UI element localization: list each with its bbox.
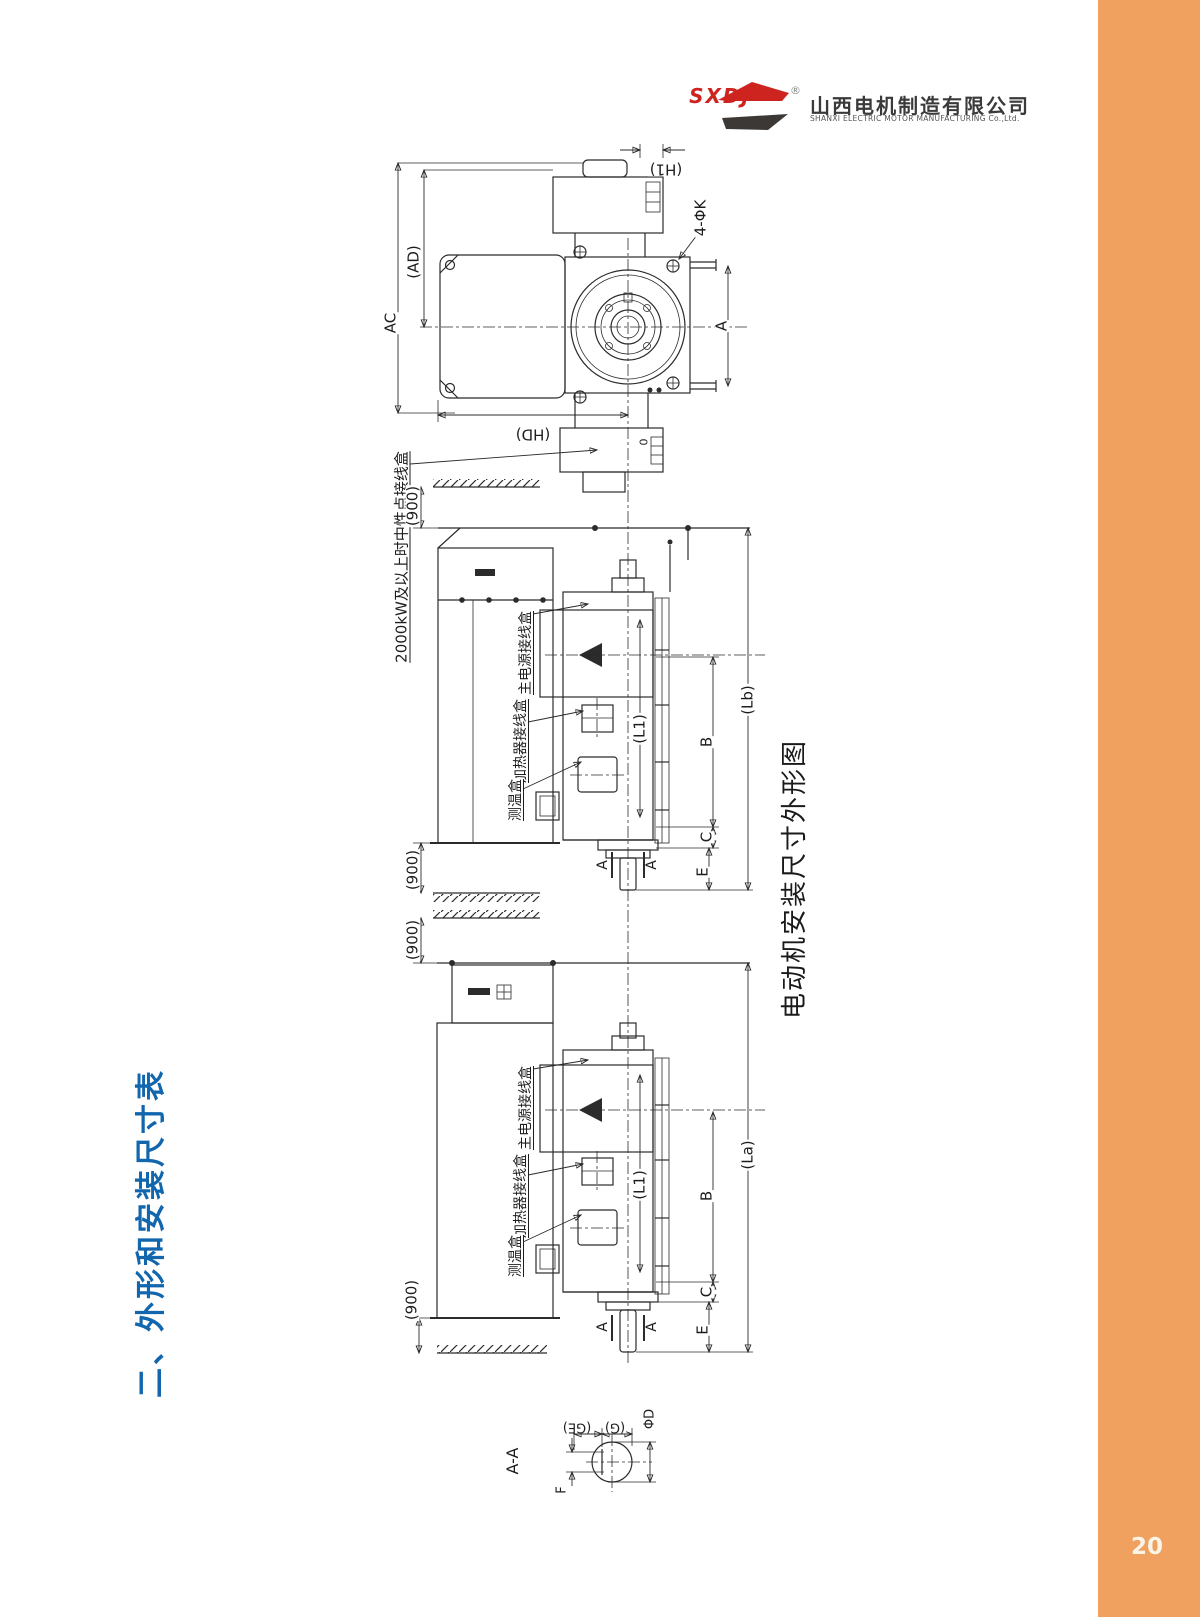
heater-terminal-box-label-d3: 加热器接线盒 bbox=[514, 1153, 528, 1239]
dim-label-e-d3: E bbox=[696, 1324, 711, 1335]
ground-hatch-4 bbox=[437, 1345, 547, 1353]
page-section-title: 二、外形和安装尺寸表 bbox=[137, 1067, 167, 1399]
registered-trademark-icon: ® bbox=[790, 84, 801, 97]
dim-label-900-d2-bottom: (900) bbox=[406, 849, 421, 891]
company-name-en: SHANXI ELECTRIC MOTOR MANUFACTURING Co.,… bbox=[810, 114, 1020, 123]
figure-caption: 电动机安装尺寸外形图 bbox=[782, 738, 808, 1020]
dim-label-c-d2: C bbox=[700, 831, 715, 843]
shaft-section-view bbox=[566, 1428, 656, 1492]
dim-label-900-d3-top: (900) bbox=[406, 919, 421, 961]
neutral-box-note: 2000kW及以上时中性点接线盒 bbox=[395, 450, 410, 664]
engineering-drawing-canvas bbox=[0, 0, 1200, 1617]
ground-hatch-2 bbox=[433, 893, 540, 902]
dim-label-b-d2: B bbox=[700, 736, 715, 748]
dim-label-g: (G) bbox=[604, 1421, 626, 1434]
dim-label-h1: (H1) bbox=[649, 162, 684, 177]
dim-label-lb: (Lb) bbox=[741, 684, 756, 716]
dim-label-e-d2: E bbox=[696, 866, 711, 877]
main-terminal-box-label-d3: 主电源接线盒 bbox=[519, 1065, 533, 1151]
temp-box-label-d2: 测温盒 bbox=[509, 778, 523, 822]
ground-hatch-3 bbox=[433, 910, 540, 918]
dim-label-4phik: 4-ΦK bbox=[694, 199, 709, 238]
ground-hatch-1 bbox=[433, 479, 540, 487]
dim-label-ge: (GE) bbox=[562, 1421, 592, 1434]
dim-label-l1-d2: (L1) bbox=[633, 713, 648, 745]
dim-label-zero: 0 bbox=[639, 438, 650, 447]
dim-label-900-d2-top: (900) bbox=[406, 485, 421, 527]
section-view-title: A-A bbox=[505, 1447, 521, 1476]
main-terminal-box-label-d2: 主电源接线盒 bbox=[519, 610, 533, 696]
dim-label-b-d3: B bbox=[700, 1190, 715, 1202]
page-number: 20 bbox=[1122, 1534, 1172, 1560]
logo-sxdj-text: SXDJ bbox=[689, 84, 751, 108]
dim-label-900-d3-bottom: (900) bbox=[405, 1279, 420, 1321]
end-view-drawing bbox=[398, 144, 748, 492]
section-mark-a-right-d3: A bbox=[645, 1321, 659, 1333]
section-mark-a-left-d3: A bbox=[596, 1321, 610, 1333]
dim-label-f: F bbox=[556, 1485, 569, 1494]
dim-label-hd: (HD) bbox=[515, 427, 552, 442]
catalog-page: 20 SXDJ ® 山西电机制造有限公司 SHANXI ELECTRIC MOT… bbox=[0, 0, 1200, 1617]
dim-label-a: A bbox=[715, 320, 730, 332]
dim-label-la: (La) bbox=[741, 1139, 756, 1170]
section-mark-a-right-d2: A bbox=[645, 859, 659, 871]
section-mark-a-left-d2: A bbox=[596, 859, 610, 871]
heater-terminal-box-label-d2: 加热器接线盒 bbox=[514, 698, 528, 784]
dim-label-ac: AC bbox=[384, 312, 399, 334]
dim-label-l1-d3: (L1) bbox=[633, 1169, 648, 1201]
dim-label-ad: (AD) bbox=[407, 244, 422, 280]
temp-box-label-d3: 测温盒 bbox=[509, 1234, 523, 1278]
dim-label-phid: ΦD bbox=[644, 1408, 657, 1430]
dim-label-c-d3: C bbox=[700, 1286, 715, 1298]
page-edge-bar bbox=[1098, 0, 1200, 1617]
